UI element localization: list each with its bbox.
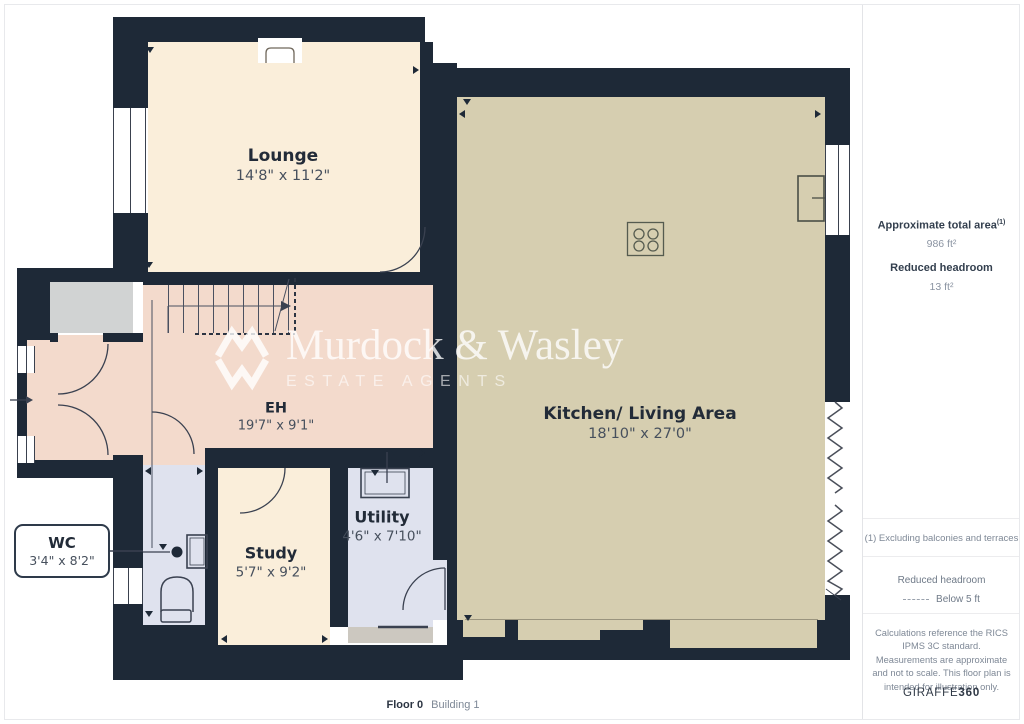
- wall: [113, 645, 463, 680]
- disclaimer-text: Calculations reference the RICS IPMS 3C …: [871, 627, 1012, 694]
- reduced-headroom-value: 13 ft²: [863, 281, 1020, 293]
- measure-arrow: [371, 470, 379, 476]
- divider: [863, 518, 1020, 519]
- staircase: [168, 285, 292, 333]
- measure-arrow: [197, 467, 203, 475]
- measure-arrow: [419, 449, 425, 457]
- room-label-utility: Utility 4'6" x 7'10": [342, 508, 421, 545]
- room-floor: [348, 627, 433, 643]
- legend-row: Below 5 ft: [863, 594, 1020, 605]
- measure-arrow: [390, 449, 398, 455]
- window-mullion: [34, 346, 35, 373]
- wall: [825, 235, 850, 402]
- plan-footer: Floor 0Building 1: [387, 699, 480, 711]
- dashed-line-icon: [903, 599, 929, 600]
- window-mullion: [113, 568, 114, 604]
- wall: [205, 448, 433, 468]
- building-label: Building 1: [431, 699, 479, 711]
- fireplace-recess: [258, 38, 302, 63]
- measure-arrow: [159, 544, 167, 550]
- window-mullion: [113, 108, 114, 213]
- window-mullion: [128, 568, 129, 604]
- wall: [143, 625, 205, 645]
- room-dims: 5'7" x 9'2": [236, 565, 307, 581]
- alcove-floor: [463, 620, 505, 637]
- room-dims: 19'7" x 9'1": [238, 419, 314, 434]
- measure-arrow: [815, 110, 821, 118]
- footnote-marker: (1): [997, 219, 1006, 226]
- threshold-line: [465, 619, 818, 620]
- window-mullion: [849, 145, 850, 235]
- wall: [447, 560, 457, 620]
- window-mullion: [26, 436, 27, 463]
- window-mullion: [825, 145, 826, 235]
- room-floor: [433, 560, 447, 620]
- window-mullion: [142, 568, 143, 604]
- room-floor: [457, 97, 825, 620]
- total-area-label: Approximate total area(1): [863, 219, 1020, 232]
- measure-arrow: [145, 262, 153, 268]
- room-label-lounge: Lounge 14'8" x 11'2": [236, 146, 330, 184]
- room-dims: 4'6" x 7'10": [342, 529, 421, 545]
- wall: [825, 97, 850, 145]
- room-floor: [825, 402, 850, 595]
- room-dims: 14'8" x 11'2": [236, 168, 330, 184]
- info-sidebar: Approximate total area(1) 986 ft² Reduce…: [862, 5, 1020, 719]
- floor-label: Floor 0: [387, 699, 424, 711]
- legend-title: Reduced headroom: [863, 575, 1020, 586]
- measure-arrow: [387, 279, 395, 285]
- room-dims: 18'10" x 27'0": [543, 426, 736, 442]
- room-name: WC: [48, 534, 76, 552]
- alcove-floor: [518, 620, 600, 640]
- room-label-study: Study 5'7" x 9'2": [236, 544, 307, 581]
- reduced-headroom-label: Reduced headroom: [863, 262, 1020, 274]
- room-name: Lounge: [236, 146, 330, 166]
- room-name: Study: [236, 544, 307, 563]
- window-mullion: [34, 436, 35, 463]
- measure-arrow: [145, 467, 151, 475]
- window-mullion: [838, 145, 839, 235]
- measure-arrow: [103, 336, 111, 342]
- total-area-value: 986 ft²: [863, 238, 1020, 250]
- wall: [17, 268, 50, 340]
- room-label-kitchen: Kitchen/ Living Area 18'10" x 27'0": [543, 404, 736, 442]
- window-mullion: [26, 346, 27, 373]
- room-floor: [27, 335, 143, 460]
- room-name: Kitchen/ Living Area: [543, 404, 736, 424]
- divider: [863, 613, 1020, 614]
- divider: [863, 556, 1020, 557]
- wall: [433, 63, 457, 560]
- wall: [447, 620, 457, 645]
- measure-arrow: [221, 635, 227, 643]
- room-name: Utility: [342, 508, 421, 527]
- giraffe360-logo: GIRAFFE360: [863, 687, 1020, 699]
- measure-arrow: [464, 615, 472, 621]
- footnote: (1) Excluding balconies and terraces: [863, 533, 1020, 544]
- wall: [205, 455, 218, 650]
- room-label-wc-callout: WC 3'4" x 8'2": [14, 524, 110, 578]
- window-mullion: [17, 346, 18, 373]
- measure-arrow: [459, 110, 465, 118]
- window-mullion: [145, 108, 146, 213]
- measure-arrow: [463, 99, 471, 105]
- wall: [50, 268, 113, 280]
- room-floor: [348, 462, 433, 627]
- measure-arrow: [145, 611, 153, 617]
- room-label-eh: EH 19'7" x 9'1": [238, 401, 314, 434]
- room-name: EH: [238, 401, 314, 417]
- alcove-floor: [600, 620, 643, 630]
- room-floor: [143, 455, 205, 465]
- window-mullion: [130, 108, 131, 213]
- measure-arrow: [146, 47, 154, 53]
- room-dims: 3'4" x 8'2": [29, 553, 95, 568]
- window-mullion: [17, 436, 18, 463]
- measure-arrow: [322, 635, 328, 643]
- room-floor: [50, 280, 133, 333]
- measure-arrow: [141, 66, 147, 74]
- legend-value: Below 5 ft: [936, 594, 980, 605]
- room-floor: [143, 465, 205, 625]
- wall: [425, 68, 850, 97]
- alcove-floor: [670, 620, 817, 648]
- measure-arrow: [413, 66, 419, 74]
- wall: [330, 462, 348, 627]
- wall: [50, 333, 58, 342]
- wall: [113, 42, 148, 108]
